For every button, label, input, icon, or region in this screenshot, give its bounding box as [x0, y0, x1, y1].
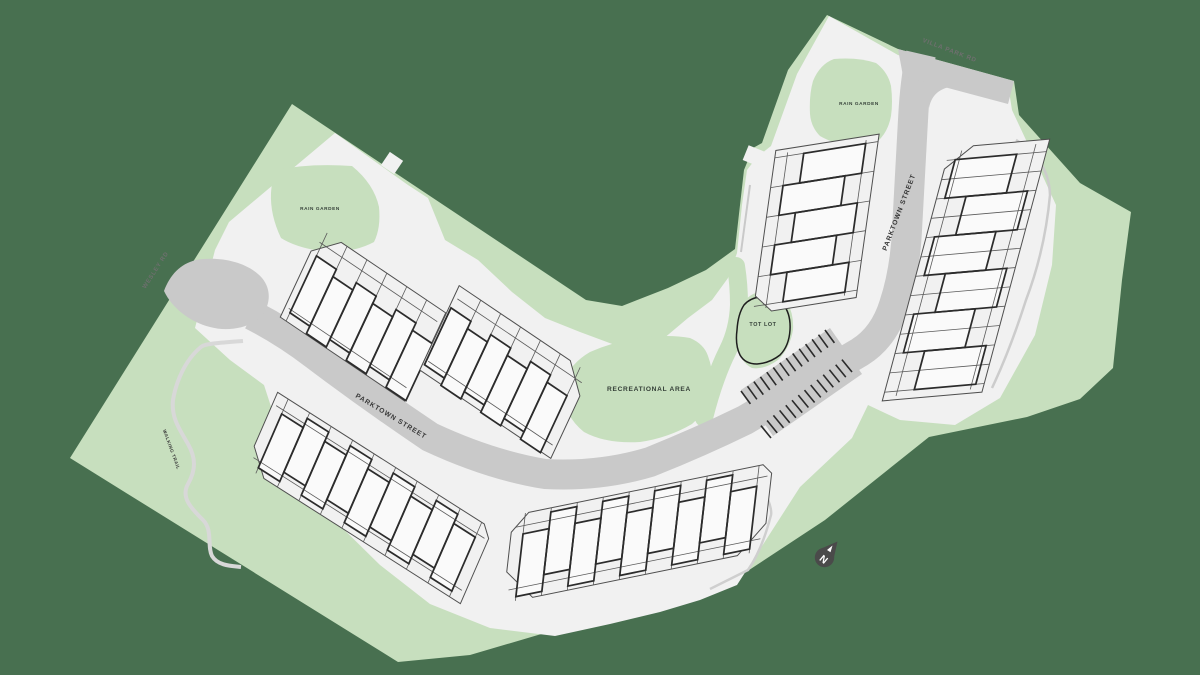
svg-text:RAIN GARDEN: RAIN GARDEN — [839, 101, 879, 106]
svg-text:RECREATIONAL AREA: RECREATIONAL AREA — [607, 386, 691, 393]
svg-text:TOT LOT: TOT LOT — [749, 322, 776, 328]
svg-text:RAIN GARDEN: RAIN GARDEN — [300, 206, 340, 211]
